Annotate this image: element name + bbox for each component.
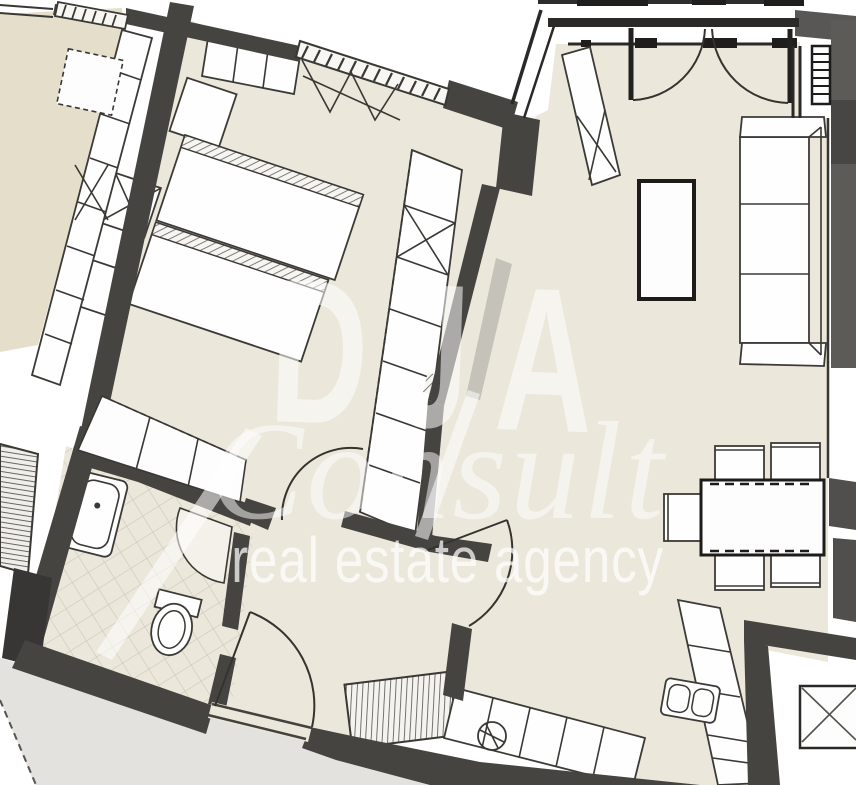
svg-text:real estate agency: real estate agency xyxy=(231,526,664,597)
